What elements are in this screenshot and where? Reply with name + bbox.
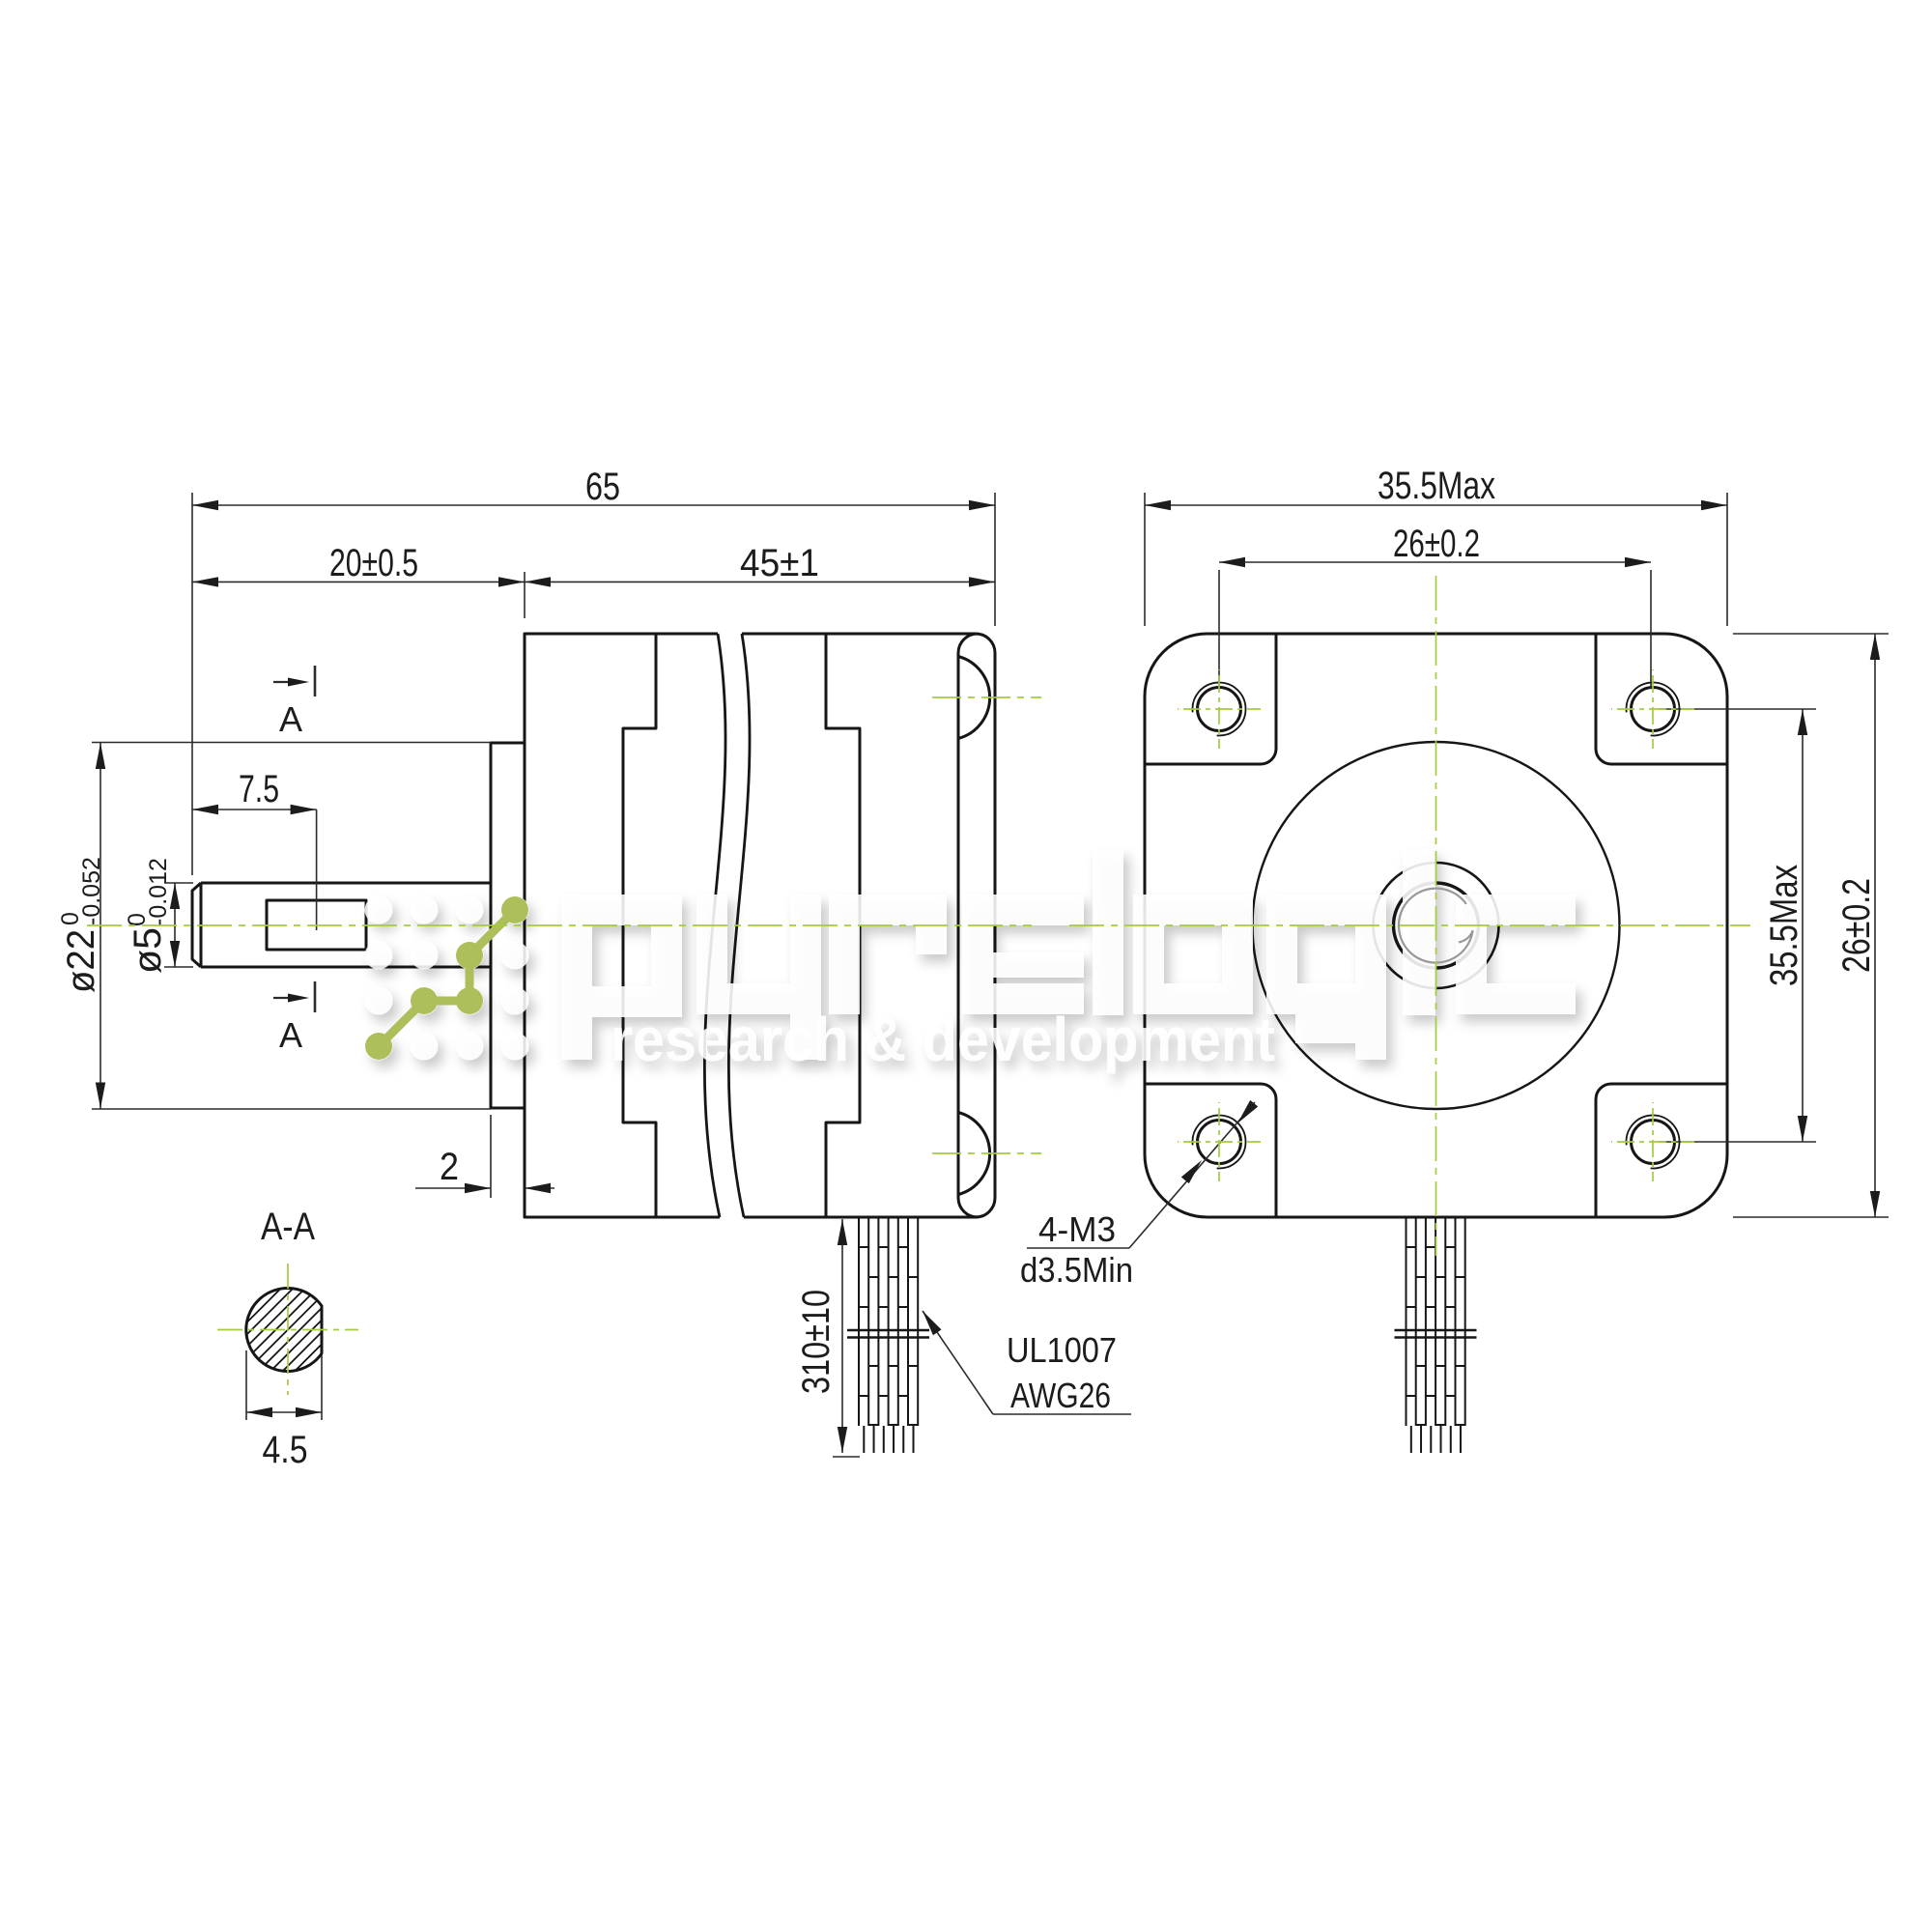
svg-text:AWG26: AWG26 [1010, 1376, 1111, 1415]
svg-text:UL1007: UL1007 [1007, 1330, 1117, 1370]
svg-text:research & development: research & development [611, 1005, 1275, 1074]
svg-text:310±10: 310±10 [795, 1290, 838, 1394]
svg-text:ø22: ø22 [60, 929, 102, 993]
svg-text:26±0.2: 26±0.2 [1835, 878, 1878, 973]
svg-text:d3.5Min: d3.5Min [1020, 1250, 1133, 1290]
svg-text:45±1: 45±1 [740, 542, 819, 584]
svg-text:2: 2 [440, 1146, 459, 1188]
svg-text:4-M3: 4-M3 [1038, 1209, 1116, 1249]
svg-text:A: A [279, 699, 302, 739]
svg-text:35.5Max: 35.5Max [1378, 465, 1495, 507]
svg-text:7.5: 7.5 [239, 768, 279, 810]
svg-text:26±0.2: 26±0.2 [1393, 523, 1480, 565]
svg-text:ø5: ø5 [127, 927, 169, 974]
svg-text:-0.012: -0.012 [145, 858, 172, 926]
svg-text:4.5: 4.5 [263, 1429, 308, 1471]
svg-text:65: 65 [585, 466, 620, 508]
svg-text:-0.052: -0.052 [78, 857, 105, 925]
svg-text:A: A [279, 1015, 302, 1055]
svg-text:A-A: A-A [261, 1206, 315, 1248]
svg-text:35.5Max: 35.5Max [1763, 865, 1805, 986]
svg-text:20±0.5: 20±0.5 [329, 542, 418, 584]
